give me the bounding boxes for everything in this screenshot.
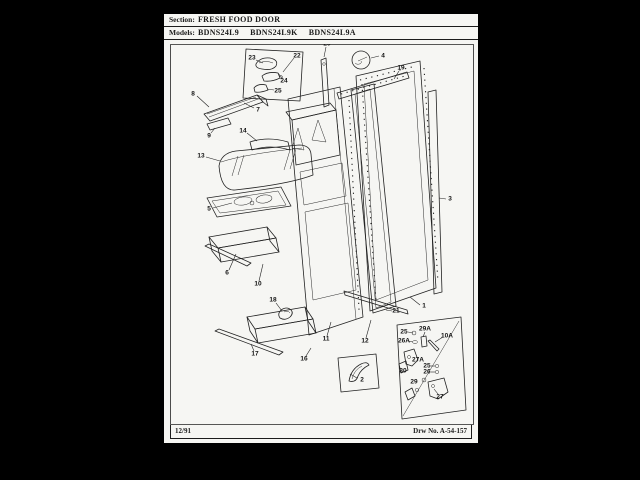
part-callout-10: 10 xyxy=(254,281,262,288)
part-callout-21: 21 xyxy=(392,308,400,315)
part-callout-5: 5 xyxy=(207,206,211,213)
detail-circle-4 xyxy=(352,51,370,69)
footer-date: 12/91 xyxy=(175,427,191,435)
screen: Section: FRESH FOOD DOOR Models: BDNS24L… xyxy=(0,0,640,480)
part-callout-17: 17 xyxy=(251,351,259,358)
part-callout-24: 24 xyxy=(280,78,288,85)
part-callout-30: 30 xyxy=(399,368,407,375)
exploded-parts-diagram: 2322242587914135610181716204193121111222… xyxy=(170,44,474,425)
part-callout-1: 1 xyxy=(422,303,426,310)
part-callout-29: 29 xyxy=(410,379,418,386)
model-number: BDNS24L9 xyxy=(198,28,239,37)
part-callout-14: 14 xyxy=(239,128,247,135)
trim-bar-17 xyxy=(215,329,283,355)
end-plate-9 xyxy=(207,118,231,130)
part-callout-7: 7 xyxy=(256,107,260,114)
part-callout-19: 19 xyxy=(397,65,405,72)
callout-leader-line xyxy=(276,303,282,311)
callout-leader-line xyxy=(259,264,263,281)
callout-leader-line xyxy=(371,56,379,58)
part-callout-26A: 26A xyxy=(398,338,410,345)
footer-drawing-number: Drw No. A-54-157 xyxy=(413,425,467,438)
section-label: Section: xyxy=(169,14,196,26)
header-models-row: Models: BDNS24L9 BDNS24L9K BDNS24L9A xyxy=(164,27,478,40)
models-label: Models: xyxy=(169,27,196,39)
outer-door-panel xyxy=(356,61,438,311)
part-callout-16: 16 xyxy=(300,356,308,363)
model-number: BDNS24L9A xyxy=(309,28,356,37)
part-callout-26: 26 xyxy=(423,369,431,376)
part-callout-27: 27 xyxy=(436,394,444,401)
part-callout-8: 8 xyxy=(191,91,195,98)
header-section-row: Section: FRESH FOOD DOOR xyxy=(164,14,478,27)
callout-leader-line xyxy=(283,58,294,72)
door-bin-6 xyxy=(205,227,279,266)
callout-leader-line xyxy=(247,133,257,141)
part-callout-2: 2 xyxy=(360,377,364,384)
callout-leader-line xyxy=(366,320,371,338)
part-callout-6: 6 xyxy=(225,270,229,277)
part-callout-10A: 10A xyxy=(441,333,453,340)
callout-leader-line xyxy=(197,96,209,107)
part-callout-11: 11 xyxy=(323,336,330,343)
door-gasket-12 xyxy=(351,84,396,313)
callout-leader-line xyxy=(324,47,326,57)
part-callout-13: 13 xyxy=(197,153,205,160)
callout-leader-line xyxy=(386,310,392,311)
side-trim-3 xyxy=(428,90,442,294)
part-callout-25: 25 xyxy=(274,88,282,95)
callout-layer: 2322242587914135610181716204193121111222… xyxy=(191,44,453,401)
corner-part-box-2 xyxy=(338,354,379,392)
callout-leader-line xyxy=(439,198,446,199)
callout-leader-line xyxy=(213,203,232,208)
part-callout-12: 12 xyxy=(361,338,369,345)
footer-row: 12/91 Drw No. A-54-157 xyxy=(170,425,472,439)
inner-door-liner-11 xyxy=(286,87,363,335)
strip-14 xyxy=(250,139,290,150)
callout-leader-line xyxy=(410,297,420,305)
document-page: Section: FRESH FOOD DOOR Models: BDNS24L… xyxy=(164,14,478,443)
shelf-tray-5 xyxy=(207,187,291,217)
section-title: FRESH FOOD DOOR xyxy=(198,15,280,24)
callout-leader-line xyxy=(229,254,236,270)
part-callout-3: 3 xyxy=(448,196,452,203)
part-callout-9: 9 xyxy=(207,133,211,140)
part-callout-25: 25 xyxy=(400,329,408,336)
part-callout-20: 20 xyxy=(323,44,331,48)
center-strip-20 xyxy=(321,58,329,107)
part-callout-18: 18 xyxy=(269,297,277,304)
door-bin-16 xyxy=(247,307,316,343)
part-callout-22: 22 xyxy=(293,53,301,60)
part-callout-29A: 29A xyxy=(419,326,431,333)
callout-leader-line xyxy=(206,157,220,161)
part-callout-4: 4 xyxy=(381,53,385,60)
model-number: BDNS24L9K xyxy=(250,28,298,37)
top-trim-19 xyxy=(337,72,409,99)
dairy-cover-13 xyxy=(219,145,313,190)
part-callout-23: 23 xyxy=(248,55,256,62)
